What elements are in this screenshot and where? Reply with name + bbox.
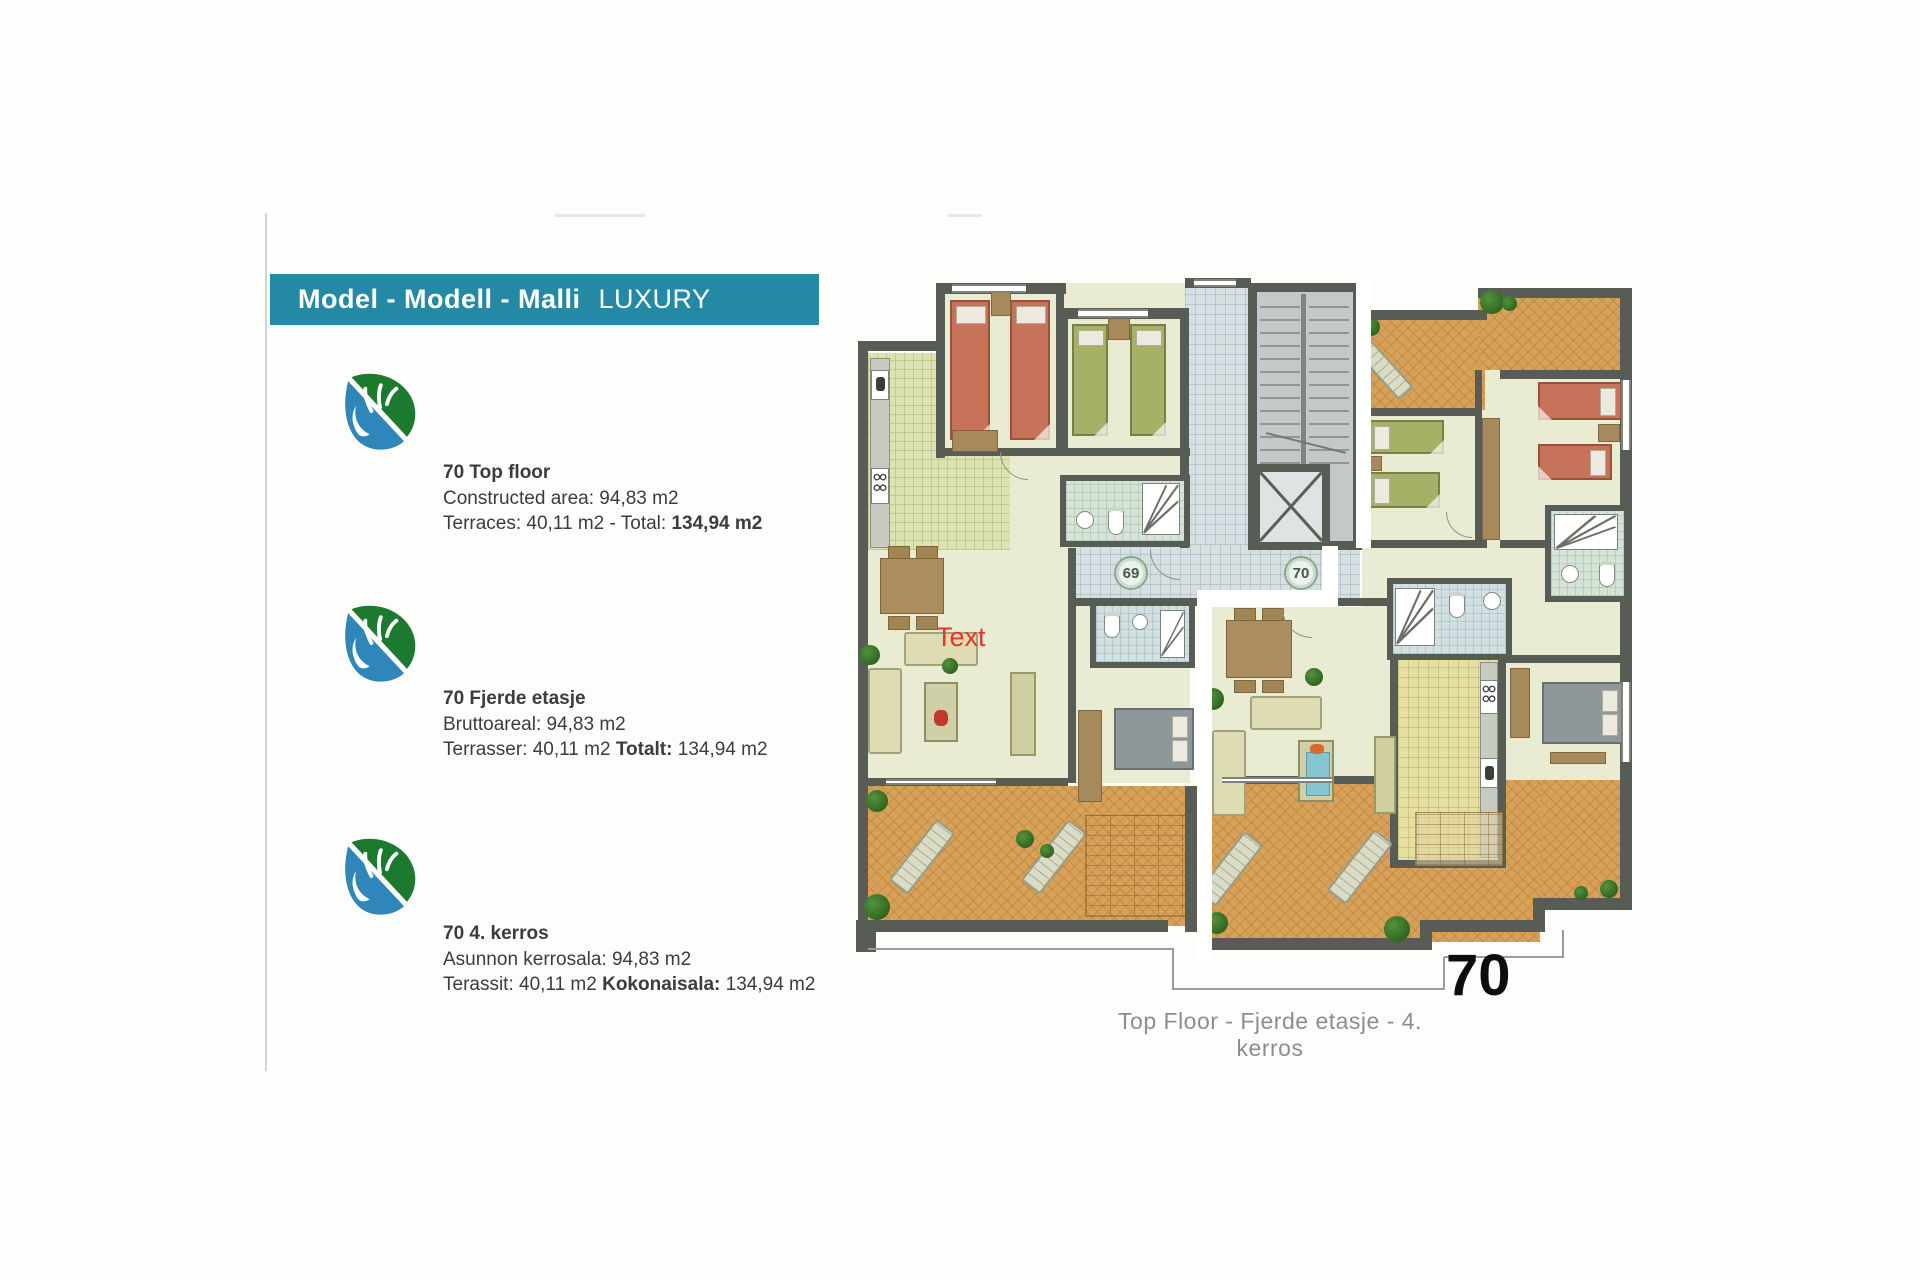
sink-icon xyxy=(1483,592,1501,610)
sofa-icon xyxy=(1212,730,1246,816)
shower-icon xyxy=(1142,483,1180,535)
wardrobe xyxy=(1482,418,1500,540)
terrace-steps xyxy=(1415,812,1503,866)
toilet-icon xyxy=(1599,561,1615,587)
toilet-icon xyxy=(1104,612,1120,638)
company-logo-icon xyxy=(337,599,423,687)
plot-contour xyxy=(1172,948,1174,990)
unit-70-highlight-outline xyxy=(1356,276,1371,548)
plan-caption: Top Floor - Fjerde etasje - 4. kerros xyxy=(1100,1008,1440,1062)
info-area-line: Bruttoareal: 94,83 m2 xyxy=(443,712,873,738)
nightstand xyxy=(991,292,1011,316)
wall xyxy=(1365,310,1487,320)
window xyxy=(1621,380,1631,450)
elevator-icon xyxy=(1252,464,1330,550)
cabinet xyxy=(1374,736,1396,814)
bathroom-69 xyxy=(1060,475,1190,547)
coffee-table-icon xyxy=(924,682,958,742)
stove-icon xyxy=(871,468,889,504)
bush-icon xyxy=(1502,296,1517,311)
unit-70-badge: 70 xyxy=(1284,556,1318,590)
shower-icon xyxy=(1554,514,1618,550)
brochure-page: Model - Modell - MalliLUXURY 70 Top floo… xyxy=(0,0,1920,1280)
toilet-icon xyxy=(1449,592,1465,618)
info-block-finnish: 70 4. kerros Asunnon kerrosala: 94,83 m2… xyxy=(443,921,873,998)
info-terrace-line: Terraces: 40,11 m2 - Total: 134,94 m2 xyxy=(443,511,873,537)
kitchen-sink-icon xyxy=(871,370,889,400)
wall xyxy=(1506,655,1632,663)
terrace-door xyxy=(886,779,996,785)
chair xyxy=(916,616,938,630)
page-edge-line xyxy=(265,213,267,1071)
info-block-english: 70 Top floor Constructed area: 94,83 m2 … xyxy=(443,460,873,537)
bench xyxy=(1550,752,1606,764)
info-terrace-line: Terassit: 40,11 m2 Kokonaisala: 134,94 m… xyxy=(443,972,873,998)
scan-smudge xyxy=(555,214,645,217)
scan-smudge xyxy=(948,214,982,217)
entry-hall-floor xyxy=(1185,288,1248,545)
bed-icon xyxy=(1010,300,1050,440)
wall xyxy=(1362,408,1482,416)
unit-70-highlight-outline xyxy=(1197,590,1212,966)
wall xyxy=(1056,290,1064,450)
company-logo-icon xyxy=(337,367,423,455)
bush-icon xyxy=(1040,844,1054,858)
kitchen-sink-icon xyxy=(1480,758,1498,788)
wall xyxy=(856,920,1168,932)
title-banner: Model - Modell - MalliLUXURY xyxy=(270,274,819,325)
sink-icon xyxy=(1132,614,1148,630)
shower-icon xyxy=(1395,588,1435,646)
wall xyxy=(1475,370,1482,548)
bed-icon xyxy=(1368,420,1444,454)
window xyxy=(1078,309,1148,318)
info-title: 70 4. kerros xyxy=(443,921,873,947)
kitchen-69-floor xyxy=(938,456,1010,550)
wall xyxy=(1500,370,1632,379)
info-block-norwegian: 70 Fjerde etasje Bruttoareal: 94,83 m2 T… xyxy=(443,686,873,763)
bathroom-70-inner xyxy=(1387,578,1512,660)
sink-icon xyxy=(1561,565,1579,583)
bush-icon xyxy=(866,790,888,812)
info-terrace-line: Terrasser: 40,11 m2 Totalt: 134,94 m2 xyxy=(443,737,873,763)
big-unit-number: 70 xyxy=(1446,942,1511,1009)
floor-plan: Text 69 70 xyxy=(850,230,1640,980)
chair xyxy=(1234,680,1256,693)
coffee-table-icon xyxy=(1298,740,1334,802)
sink-icon xyxy=(1076,511,1094,529)
wardrobe xyxy=(1510,668,1530,738)
nightstand xyxy=(1598,424,1620,442)
wall xyxy=(858,341,868,933)
info-title: 70 Fjerde etasje xyxy=(443,686,873,712)
info-title: 70 Top floor xyxy=(443,460,873,486)
bed-icon xyxy=(1538,382,1622,420)
info-area-line: Constructed area: 94,83 m2 xyxy=(443,486,873,512)
wall xyxy=(1068,548,1076,783)
plant-icon xyxy=(1305,668,1323,686)
bathroom-70 xyxy=(1545,505,1630,602)
plant-icon xyxy=(942,658,958,674)
bush-icon xyxy=(1016,830,1034,848)
closet xyxy=(952,430,998,452)
wall xyxy=(1420,920,1545,932)
model-labels: Model - Modell - Malli xyxy=(298,284,581,314)
terrace-door xyxy=(1222,777,1332,783)
plot-contour xyxy=(868,948,1173,950)
bed-icon xyxy=(1538,444,1612,480)
bush-icon xyxy=(1480,290,1504,314)
plant-icon xyxy=(860,645,880,665)
wall xyxy=(864,341,940,351)
red-text-annotation: Text xyxy=(936,622,986,653)
bed-icon xyxy=(1130,324,1166,436)
dining-table-icon xyxy=(1226,620,1292,678)
bush-icon xyxy=(864,894,890,920)
chair xyxy=(1262,680,1284,693)
bush-icon xyxy=(1600,880,1618,898)
unit-70-highlight-outline xyxy=(1197,590,1338,606)
unit-69-badge: 69 xyxy=(1114,556,1148,590)
bush-icon xyxy=(1574,886,1588,900)
company-logo-icon xyxy=(337,832,423,920)
bed-icon xyxy=(950,300,990,440)
toilet-icon xyxy=(1108,507,1124,535)
variant-label: LUXURY xyxy=(599,284,711,314)
bed-icon xyxy=(1368,472,1440,508)
shower-icon xyxy=(1160,610,1185,658)
wall xyxy=(1362,540,1487,548)
bed-icon xyxy=(1542,682,1624,744)
sofa-icon xyxy=(868,668,902,754)
info-area-line: Asunnon kerrosala: 94,83 m2 xyxy=(443,947,873,973)
bed-icon xyxy=(1114,708,1194,770)
cabinet xyxy=(1010,672,1036,756)
sofa-icon xyxy=(1250,696,1322,730)
dining-table-icon xyxy=(880,558,944,614)
stove-icon xyxy=(1480,680,1498,714)
terrace-steps xyxy=(1085,815,1192,917)
chair xyxy=(888,616,910,630)
wardrobe xyxy=(1078,710,1102,802)
bush-icon xyxy=(1384,916,1410,942)
window xyxy=(1194,279,1236,287)
window xyxy=(952,284,1026,293)
nightstand xyxy=(1108,318,1130,340)
wall xyxy=(936,283,945,458)
plot-contour xyxy=(1443,957,1445,990)
window xyxy=(1621,682,1631,762)
bed-icon xyxy=(1072,324,1108,436)
plot-contour xyxy=(1173,988,1445,990)
plot-contour xyxy=(1562,930,1564,958)
bathroom-69-master xyxy=(1090,600,1195,668)
